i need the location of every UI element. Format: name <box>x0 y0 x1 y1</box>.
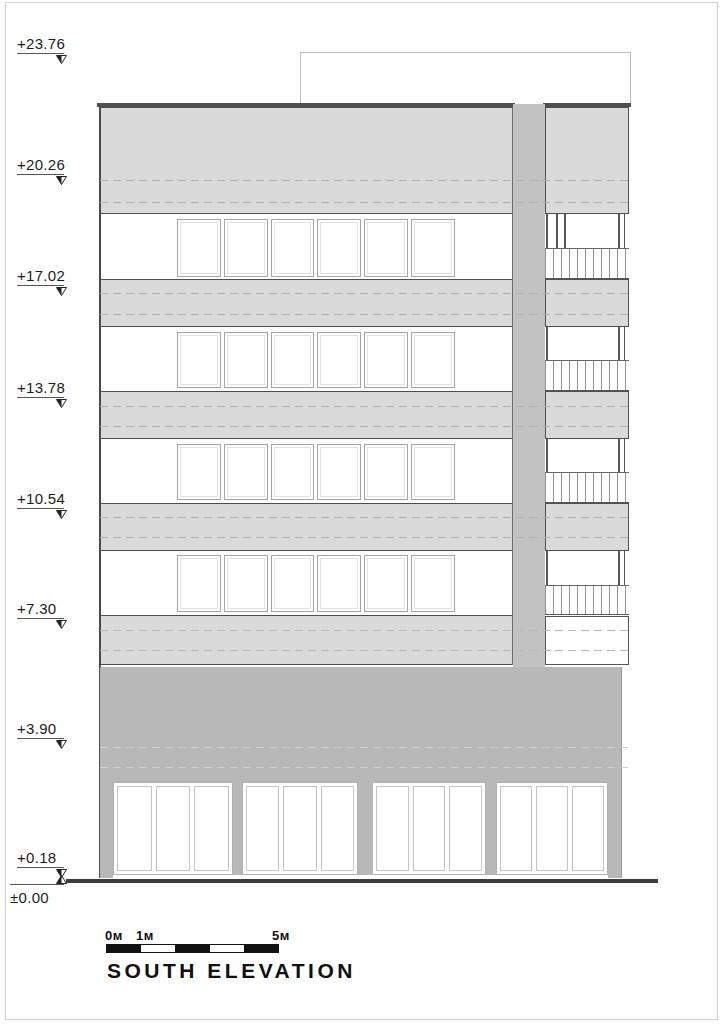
window-pane <box>317 332 361 388</box>
window-row <box>177 332 455 388</box>
level-marker: +13.78 <box>17 397 64 398</box>
level-marker: +23.76 <box>17 53 64 54</box>
storefront-pane <box>413 786 446 871</box>
balcony-post <box>546 551 548 585</box>
storefront-pane <box>283 786 316 871</box>
balcony-slab-band <box>545 503 629 551</box>
slab-dashed-line <box>100 406 629 407</box>
window-pane <box>364 555 408 612</box>
storefront-pane <box>246 786 279 871</box>
window-row <box>177 555 455 612</box>
window-pane <box>177 444 221 500</box>
balcony-railing <box>545 585 629 615</box>
balcony-slab-band <box>545 107 629 214</box>
core-strip <box>513 104 545 667</box>
roof-outline <box>300 52 631 105</box>
window-pane <box>317 555 361 612</box>
window-pane <box>364 332 408 388</box>
scale-label: 0м <box>105 928 123 943</box>
level-marker: +7.30 <box>17 618 64 619</box>
scale-bar-segment <box>141 945 175 952</box>
balcony-post <box>618 551 620 585</box>
storefront-pane <box>117 786 152 871</box>
slab-dashed-line <box>100 630 629 631</box>
level-label: ±0.00 <box>10 889 49 906</box>
window-pane <box>411 444 455 500</box>
balcony-post <box>564 214 566 248</box>
scale-label: 5м <box>272 928 290 943</box>
storefront-group <box>496 782 608 875</box>
window-pane <box>177 555 221 612</box>
storefront-pane <box>449 786 482 871</box>
level-label: +13.78 <box>17 379 65 396</box>
slab-dashed-line <box>100 293 629 294</box>
window-pane <box>224 444 268 500</box>
slab-dashed-line <box>100 537 629 538</box>
balcony-post <box>624 439 626 472</box>
window-pane <box>364 444 408 500</box>
window-row <box>177 219 455 277</box>
balcony-post <box>618 327 620 360</box>
level-label: +20.26 <box>17 156 65 173</box>
level-marker-icon <box>56 399 67 408</box>
storefront-group <box>242 782 358 875</box>
window-pane <box>177 332 221 388</box>
level-marker-ground: ±0.00 <box>10 884 64 885</box>
storefront-pane <box>572 786 604 871</box>
window-pane <box>271 555 315 612</box>
level-marker-icon <box>56 740 67 749</box>
storefront-pane <box>500 786 532 871</box>
facade-band <box>100 391 513 439</box>
level-label: +10.54 <box>17 490 65 507</box>
balcony-opening <box>545 439 629 472</box>
scale-bar <box>106 944 279 953</box>
scale-bar-segment <box>175 945 209 952</box>
level-label: +17.02 <box>17 267 65 284</box>
balcony-panel <box>545 616 629 665</box>
scale-bar-segment <box>107 945 141 952</box>
facade-band <box>100 279 513 327</box>
window-pane <box>411 332 455 388</box>
balcony-post <box>546 327 548 360</box>
storefront-pane <box>321 786 354 871</box>
level-label: +0.18 <box>17 849 56 866</box>
slab-dashed-line <box>100 650 629 651</box>
facade-band <box>100 615 513 665</box>
window-row <box>177 444 455 500</box>
scale-bar-segment <box>210 945 244 952</box>
storefront-group <box>113 782 233 875</box>
window-pane <box>411 555 455 612</box>
facade-band <box>100 503 513 551</box>
balcony-post <box>546 439 548 472</box>
level-marker-icon <box>56 620 67 629</box>
level-marker: +10.54 <box>17 508 64 509</box>
storefront-pane <box>156 786 191 871</box>
balcony-railing <box>545 472 629 503</box>
scale-label: 1м <box>136 928 154 943</box>
balcony-opening <box>545 327 629 360</box>
drawing-sheet: +23.76 +20.26 +17.02 +13.78 +10.54 +7.30… <box>0 0 723 1024</box>
storefront-pane <box>376 786 409 871</box>
balcony-post <box>618 214 620 248</box>
slab-dashed-line <box>100 202 629 203</box>
level-marker: +20.26 <box>17 174 64 175</box>
balcony-post <box>546 214 548 248</box>
ground-line <box>66 879 658 883</box>
balcony-post <box>624 551 626 585</box>
storefront-pane <box>536 786 568 871</box>
window-pane <box>317 444 361 500</box>
window-pane <box>224 219 268 277</box>
level-label: +7.30 <box>17 600 56 617</box>
balcony-post <box>556 214 558 248</box>
window-pane <box>411 219 455 277</box>
level-marker: +17.02 <box>17 285 64 286</box>
facade-band <box>100 107 513 214</box>
balcony-opening <box>545 551 629 585</box>
balcony-slab-band <box>545 279 629 327</box>
level-marker: +0.18 <box>17 867 64 868</box>
scale-bar-segment <box>244 945 278 952</box>
level-label: +3.90 <box>17 720 56 737</box>
storefront-pane <box>194 786 229 871</box>
level-marker-icon <box>56 55 67 64</box>
level-marker-icon <box>56 510 67 519</box>
balcony-railing <box>545 248 629 279</box>
storefront-group <box>372 782 486 875</box>
window-pane <box>224 555 268 612</box>
level-marker-icon <box>56 287 67 296</box>
window-pane <box>271 219 315 277</box>
slab-dashed-line <box>100 426 629 427</box>
balcony-railing <box>545 360 629 391</box>
balcony-post <box>624 327 626 360</box>
level-marker-icon <box>56 875 67 884</box>
window-pane <box>271 332 315 388</box>
balcony-post <box>624 214 626 248</box>
window-pane <box>224 332 268 388</box>
balcony-post <box>618 439 620 472</box>
slab-dashed-line <box>100 747 630 748</box>
drawing-title: SOUTH ELEVATION <box>107 959 356 983</box>
window-pane <box>317 219 361 277</box>
window-pane <box>271 444 315 500</box>
window-pane <box>364 219 408 277</box>
level-marker: +3.90 <box>17 738 64 739</box>
slab-dashed-line <box>100 180 629 181</box>
slab-dashed-line <box>100 767 630 768</box>
balcony-slab-band <box>545 391 629 439</box>
level-marker-icon <box>56 176 67 185</box>
slab-dashed-line <box>100 517 629 518</box>
slab-dashed-line <box>100 314 629 315</box>
level-label: +23.76 <box>17 35 65 52</box>
window-pane <box>177 219 221 277</box>
